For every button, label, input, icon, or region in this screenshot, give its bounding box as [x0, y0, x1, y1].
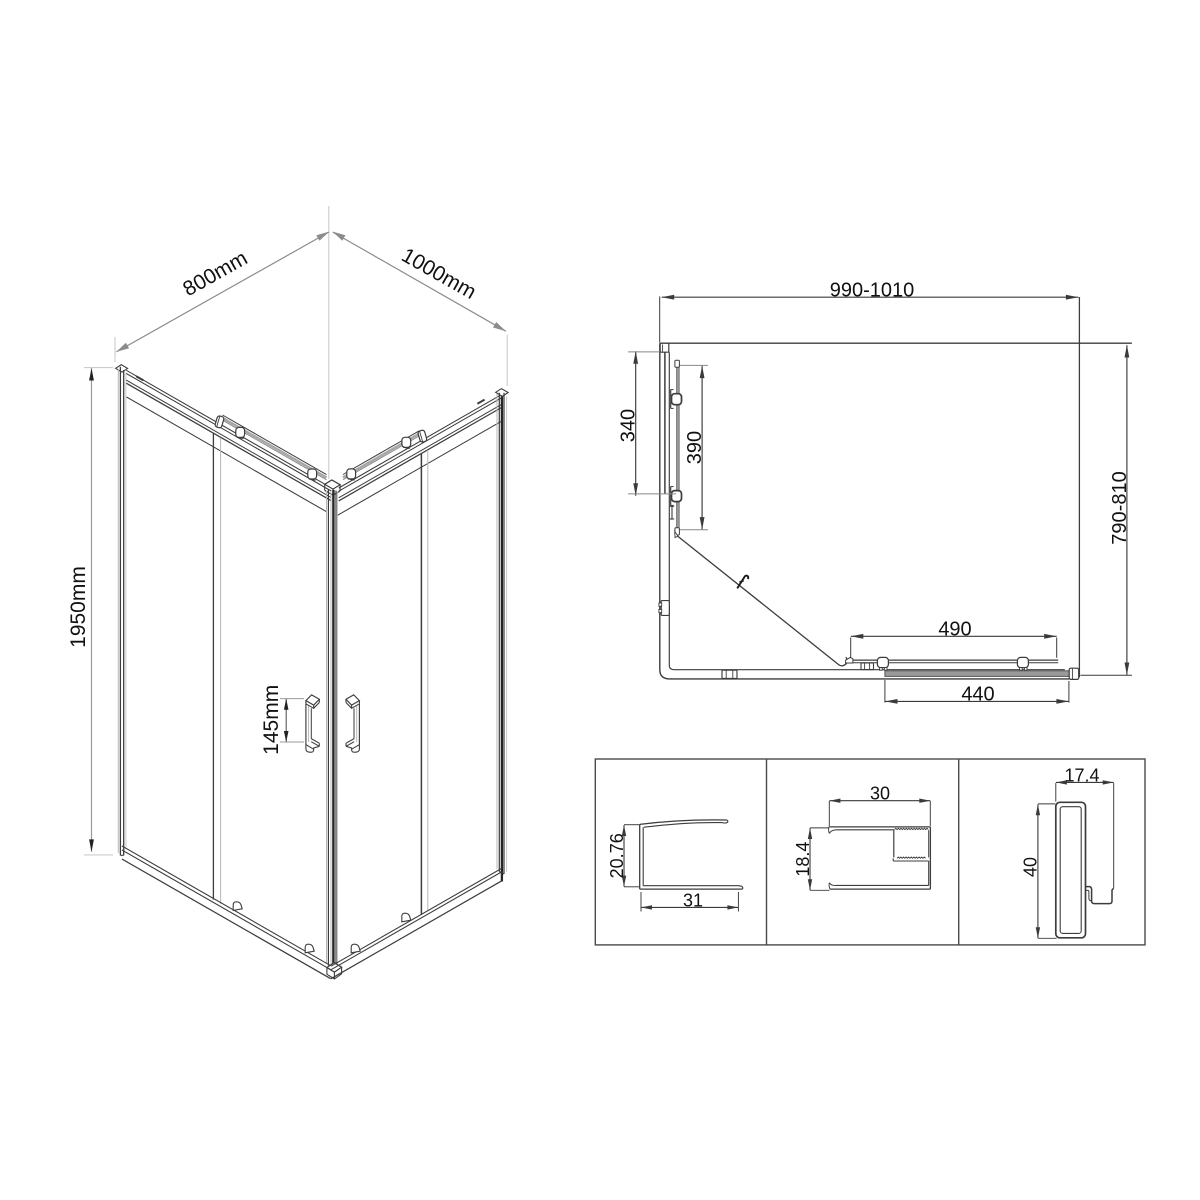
svg-text:30: 30 [870, 784, 890, 804]
svg-text:20.76: 20.76 [607, 833, 627, 878]
svg-text:17.4: 17.4 [1064, 766, 1099, 786]
svg-text:490: 490 [938, 618, 971, 640]
svg-text:990-1010: 990-1010 [830, 280, 915, 302]
svg-text:340: 340 [618, 409, 640, 442]
svg-text:145mm: 145mm [260, 685, 283, 755]
svg-text:790-810: 790-810 [1109, 471, 1131, 544]
svg-text:18.4: 18.4 [793, 842, 813, 877]
svg-text:390: 390 [684, 431, 706, 464]
svg-text:31: 31 [683, 891, 703, 911]
svg-text:40: 40 [1021, 857, 1041, 877]
svg-text:1950mm: 1950mm [67, 566, 90, 648]
svg-text:440: 440 [961, 684, 994, 706]
